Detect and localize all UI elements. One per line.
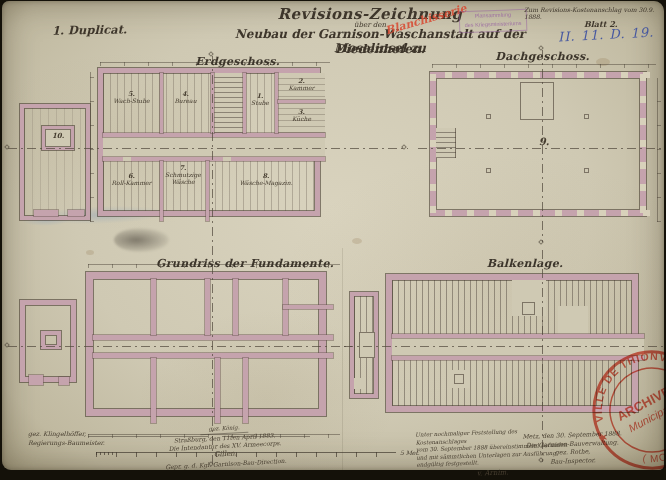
wall xyxy=(93,353,333,358)
plan-title-erdgeschoss: Erdgeschoss. xyxy=(150,55,325,68)
floor-opening xyxy=(354,378,365,389)
room-label-wachstube: 5. Wach-Stube xyxy=(103,91,160,105)
wall xyxy=(68,210,84,216)
title-line4: Diedenhofen. xyxy=(230,42,530,56)
wall xyxy=(34,210,58,216)
reference-note: Zum Revisions-Kostenanschlag vom 30.9. 1… xyxy=(524,6,664,20)
wall xyxy=(29,375,43,385)
room-number: 10. xyxy=(42,132,74,140)
room-label-schmutzige-waesche: 7. Schmutzige Wäsche xyxy=(161,165,205,186)
plan-erdgeschoss-annex: 10. xyxy=(20,104,90,220)
floor-opening xyxy=(359,332,375,358)
wall-pilasters xyxy=(640,72,646,228)
room-label-annex-court: 10. xyxy=(42,132,74,140)
plan-balkenlage-annex xyxy=(350,292,378,398)
room-name: Schmutzige Wäsche xyxy=(161,172,205,185)
room-label-stube: 1. Stube xyxy=(245,93,275,107)
stamp-star-left: ★ xyxy=(596,430,611,446)
room-name: Küche xyxy=(278,116,325,123)
room-name: Stube xyxy=(245,100,275,107)
room-label-waesche-magazin: 8. Wäsche-Magazin. xyxy=(207,173,325,187)
room-label-rollkammer: 6. Roll-Kammer xyxy=(103,173,160,187)
staircase xyxy=(436,128,456,158)
dimension-line xyxy=(432,64,656,68)
wall-pilasters xyxy=(430,210,658,216)
wall xyxy=(278,100,325,103)
room-name: Roll-Kammer xyxy=(103,180,160,187)
room-label-dach: 9. xyxy=(524,136,564,147)
wall xyxy=(151,279,156,335)
plan-title-fundamente: Grundriss der Fundamente. xyxy=(145,257,345,270)
centerline xyxy=(542,50,543,242)
plan-title-balkenlage: Balkenlage. xyxy=(440,257,610,270)
signature-title: Regierungs-Baumeister. xyxy=(28,439,140,448)
wall xyxy=(103,133,325,137)
wall xyxy=(233,279,238,335)
dimension-line xyxy=(657,78,661,222)
ministry-stamp: Plansammlung des Kriegsministeriums xyxy=(459,9,528,33)
wall-pilasters xyxy=(430,72,658,78)
chimney-shaft xyxy=(520,82,554,120)
wall xyxy=(206,161,209,221)
wall xyxy=(59,377,69,385)
room-number: 9. xyxy=(524,136,564,147)
corridor xyxy=(103,137,325,157)
colophon-left-signature: gez. Klingelhöffer, Regierungs-Baumeiste… xyxy=(28,430,140,448)
foxing-spot xyxy=(352,238,362,244)
wall xyxy=(151,358,156,423)
room-label-kammer: 2. Kammer xyxy=(278,78,325,92)
plan-fundamente xyxy=(86,272,326,416)
centerline xyxy=(418,148,664,149)
ink-smudge xyxy=(114,228,169,252)
signature-name: gez. Klingelhöffer, xyxy=(28,430,140,439)
roof-post xyxy=(584,168,589,173)
roof-post xyxy=(486,114,491,119)
flue-box xyxy=(522,302,535,315)
plan-dachgeschoss: 9. xyxy=(430,72,646,216)
foxing-spot xyxy=(86,250,94,255)
room-label-bureau: 4. Bureau xyxy=(163,91,208,105)
door-opening xyxy=(123,157,131,161)
roof-post xyxy=(486,168,491,173)
scale-bar-subdivisions xyxy=(96,452,116,455)
flue-box xyxy=(454,374,464,384)
roof-post xyxy=(584,114,589,119)
door-opening xyxy=(223,157,231,161)
staircase xyxy=(211,73,243,133)
wall xyxy=(243,358,248,423)
duplicate-note: 1. Duplicat. xyxy=(52,22,127,37)
room-name: Wach-Stube xyxy=(103,98,160,105)
colophon-left-center: gez. König. Straßburg, den 11ten April 1… xyxy=(139,420,311,473)
centerline xyxy=(8,148,408,149)
wall xyxy=(103,157,325,161)
ministry-stamp-line2: des Kriegsministeriums xyxy=(460,19,526,30)
room-name: Wäsche-Magazin. xyxy=(207,180,325,187)
wall xyxy=(93,335,333,340)
wall xyxy=(283,305,333,309)
fold-line xyxy=(342,248,343,470)
plan-erdgeschoss: 5. Wach-Stube 4. Bureau 1. Stube 2. Kamm… xyxy=(98,68,320,216)
dimension-line xyxy=(90,72,94,222)
centerline xyxy=(8,346,352,347)
wall xyxy=(205,279,210,335)
plan-fundamente-annex xyxy=(20,300,76,382)
room-name: Bureau xyxy=(163,98,208,105)
floor-opening xyxy=(558,306,588,336)
room-name: Kammer xyxy=(278,85,325,92)
scanned-drawing: { "document": { "duplicate_note": "1. Du… xyxy=(0,0,666,480)
wall xyxy=(215,358,220,423)
room-label-kueche: 3. Küche xyxy=(278,109,325,123)
